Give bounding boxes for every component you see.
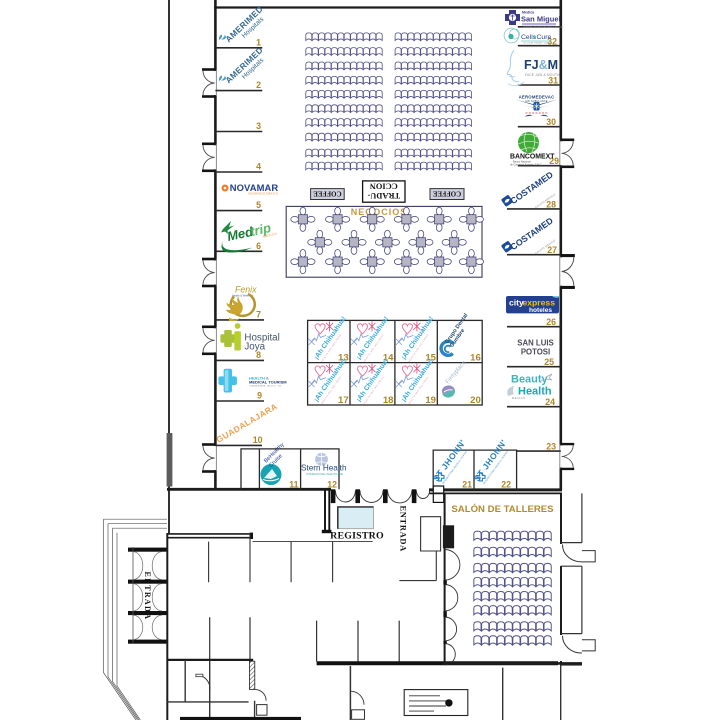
svg-text:INTERNATIONAL HEALTHCARE: INTERNATIONAL HEALTHCARE [306,473,343,476]
svg-text:23: 23 [546,442,556,452]
svg-text:10: 10 [253,435,263,445]
svg-text:NOVAMAR: NOVAMAR [230,182,279,193]
svg-text:30: 30 [546,117,556,127]
svg-text:ENTRADA: ENTRADA [399,506,408,552]
svg-text:26: 26 [546,317,556,327]
svg-text:San Miguel: San Miguel [521,14,561,23]
svg-text:SALÓN DE TALLERES: SALÓN DE TALLERES [451,503,554,515]
svg-text:CCION: CCION [370,182,398,191]
svg-text:TRADU-: TRADU- [367,191,400,200]
svg-text:12: 12 [327,480,337,490]
svg-text:31: 31 [548,76,558,86]
svg-text:hoteles: hoteles [529,307,552,314]
svg-text:9: 9 [257,391,262,401]
svg-text:3: 3 [256,121,261,131]
svg-text:MEDICAL TOURISM: MEDICAL TOURISM [249,379,287,384]
svg-text:HOSPITAL DE ESPECIALIDADES MED: HOSPITAL DE ESPECIALIDADES MEDICAS [523,26,564,29]
svg-text:5: 5 [256,200,261,210]
svg-text:17: 17 [338,395,349,406]
svg-text:16: 16 [470,353,481,364]
svg-text:GUADALAJARA · JALISCO · MX: GUADALAJARA · JALISCO · MX [249,385,282,388]
svg-text:Fenix: Fenix [235,285,257,295]
svg-text:Joya: Joya [244,342,265,353]
svg-text:Beauty: Beauty [511,374,549,386]
svg-text:4: 4 [256,162,261,172]
svg-text:MEXICO: MEXICO [512,396,526,400]
svg-text:BANCOMEXT: BANCOMEXT [510,154,555,161]
svg-text:INSURANCE MEXICO: INSURANCE MEXICO [248,193,278,196]
svg-text:7: 7 [256,309,261,319]
svg-text:ENTRADA: ENTRADA [143,572,152,621]
svg-text:2: 2 [256,80,261,90]
svg-text:CELLULAR THERAPY CENTER: CELLULAR THERAPY CENTER [523,42,553,45]
svg-text:express: express [523,298,556,308]
svg-text:NEGOCIOS: NEGOCIOS [351,207,408,217]
svg-text:FACE JAW & MOUTH: FACE JAW & MOUTH [525,73,560,77]
svg-text:21: 21 [462,480,472,490]
svg-text:Stern Health: Stern Health [301,464,347,473]
svg-text:POTOSI: POTOSI [521,348,550,357]
svg-text:11: 11 [289,479,298,489]
svg-text:de Comercio Exterior, S.N.C.: de Comercio Exterior, S.N.C. [510,164,542,167]
svg-text:Health: Health [518,386,552,398]
svg-text:FJ&M: FJ&M [524,58,558,72]
svg-text:Cure: Cure [537,34,552,41]
svg-text:25: 25 [544,357,554,367]
svg-text:REGISTRO: REGISTRO [330,530,384,541]
svg-text:22: 22 [501,480,511,490]
svg-text:24: 24 [545,397,555,407]
svg-text:COFFEE: COFFEE [432,189,461,197]
svg-text:19: 19 [425,395,436,406]
svg-text:COFFEE: COFFEE [313,189,342,197]
svg-text:AEROMEDEVAC: AEROMEDEVAC [519,95,555,100]
svg-text:18: 18 [383,395,394,406]
svg-text:✱: ✱ [533,35,536,39]
svg-text:SAN LUIS: SAN LUIS [517,339,553,348]
svg-text:6: 6 [256,241,261,251]
svg-text:20: 20 [470,395,481,406]
